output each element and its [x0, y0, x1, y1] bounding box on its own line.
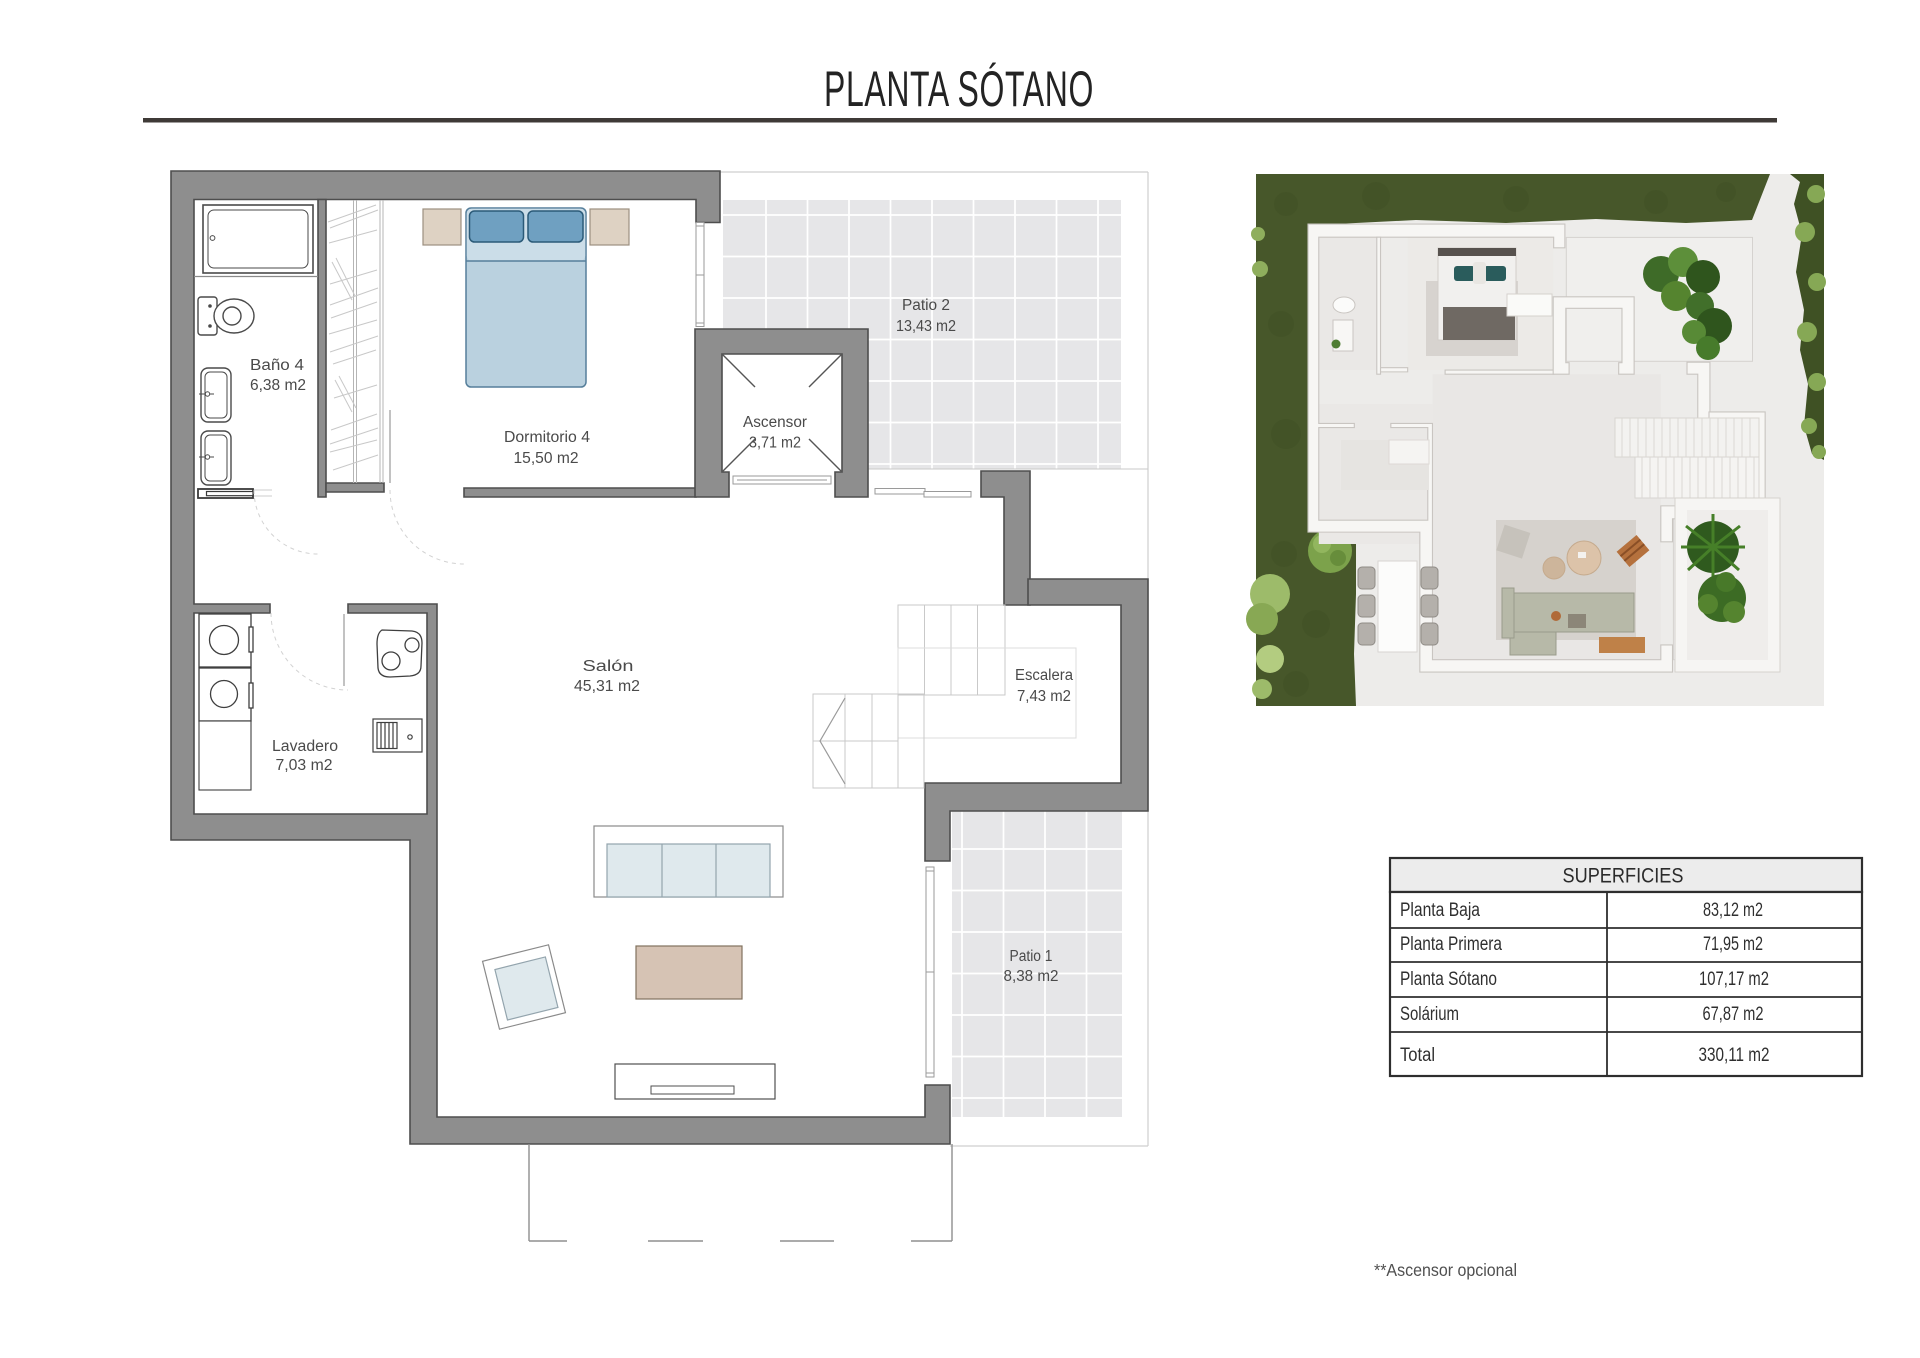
svg-text:7,03 m2: 7,03 m2: [276, 757, 333, 774]
svg-text:Ascensor: Ascensor: [743, 414, 807, 431]
svg-text:Solárium: Solárium: [1400, 1004, 1459, 1025]
svg-text:13,43 m2: 13,43 m2: [896, 318, 956, 335]
svg-text:Patio 1: Patio 1: [1010, 948, 1053, 965]
svg-text:Dormitorio 4: Dormitorio 4: [504, 429, 590, 446]
svg-text:Escalera: Escalera: [1015, 667, 1073, 684]
svg-text:SUPERFICIES: SUPERFICIES: [1563, 864, 1684, 888]
svg-text:Salón: Salón: [583, 658, 634, 675]
svg-text:Total: Total: [1400, 1045, 1435, 1066]
svg-text:Planta Primera: Planta Primera: [1400, 934, 1502, 955]
svg-text:6,38 m2: 6,38 m2: [250, 377, 306, 394]
svg-text:Lavadero: Lavadero: [272, 738, 338, 755]
svg-text:71,95 m2: 71,95 m2: [1703, 934, 1763, 955]
svg-text:7,43 m2: 7,43 m2: [1017, 688, 1071, 705]
svg-text:PLANTA SÓTANO: PLANTA SÓTANO: [824, 61, 1094, 117]
svg-text:3,71 m2: 3,71 m2: [749, 435, 801, 452]
svg-text:15,50 m2: 15,50 m2: [514, 450, 579, 467]
svg-text:Planta Baja: Planta Baja: [1400, 900, 1480, 921]
svg-text:Patio 2: Patio 2: [902, 297, 950, 314]
svg-text:83,12 m2: 83,12 m2: [1703, 900, 1763, 921]
svg-text:67,87 m2: 67,87 m2: [1703, 1004, 1764, 1025]
svg-text:45,31 m2: 45,31 m2: [574, 678, 640, 695]
svg-text:8,38 m2: 8,38 m2: [1004, 968, 1059, 985]
svg-text:**Ascensor opcional: **Ascensor opcional: [1374, 1260, 1517, 1280]
svg-text:330,11 m2: 330,11 m2: [1699, 1045, 1770, 1066]
svg-text:107,17 m2: 107,17 m2: [1699, 969, 1769, 990]
svg-text:Planta Sótano: Planta Sótano: [1400, 969, 1497, 990]
svg-text:Baño 4: Baño 4: [250, 357, 304, 374]
